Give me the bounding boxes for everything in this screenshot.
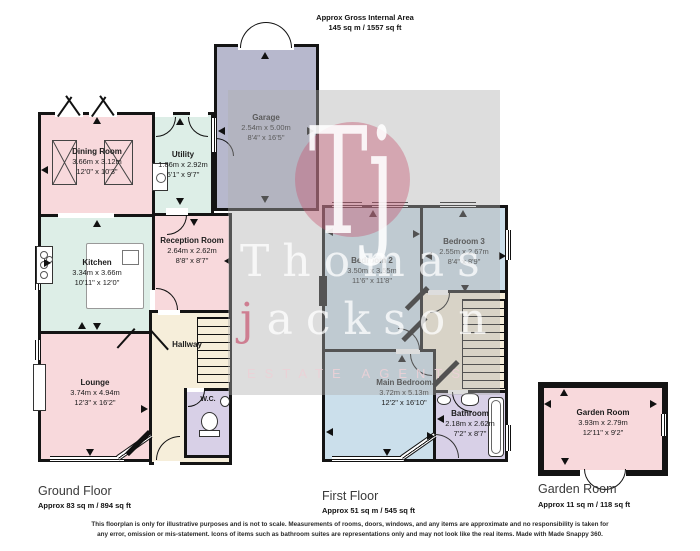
direction-arrow-icon [459,210,467,217]
window [661,414,667,436]
direction-arrow-icon [561,458,569,465]
garden-room-area: Approx 11 sq m / 118 sq ft [538,500,630,509]
gross-internal-area: Approx Gross Internal Area 145 sq m / 15… [215,13,515,33]
direction-arrow-icon [176,198,184,205]
direction-arrow-icon [86,449,94,456]
direction-arrow-icon [383,449,391,456]
gross-area-title: Approx Gross Internal Area [215,13,515,23]
toilet-cistern [199,430,220,437]
label-reception: Reception Room 2.64m x 2.62m 8'8" x 8'7" [142,236,242,266]
wall-gap [154,461,180,466]
direction-arrow-icon [369,210,377,217]
direction-arrow-icon [176,118,184,125]
brand-initial: j [240,294,267,345]
direction-arrow-icon [93,117,101,124]
label-main-bedroom: Main Bedroom 3.72m x 5.13m 12'2" x 16'10… [354,378,454,408]
floorplan-sheet: Approx Gross Internal Area 145 sq m / 15… [0,0,700,551]
wall-gap [166,208,188,215]
direction-arrow-icon [190,219,198,226]
garden-room-label: Garden Room [538,482,617,496]
window [372,202,408,208]
label-bedroom3: Bedroom 3 2.55m x 2.67m 8'4" x 8'9" [414,237,514,267]
label-bathroom: Bathroom 2.18m x 2.62m 7'2" x 8'7" [430,409,510,439]
toilet-icon [201,412,218,431]
wall-gap [150,290,155,310]
ground-floor-label: Ground Floor [38,484,112,498]
direction-arrow-icon [398,355,406,362]
direction-arrow-icon [261,196,269,203]
window [332,202,362,208]
label-hallway: Hallway [147,340,227,350]
toilet-icon [461,393,479,406]
first-floor-label: First Floor [322,489,378,503]
label-wc: W.C. [188,395,228,404]
disclaimer-text: This floorplan is only for illustrative … [88,520,612,540]
direction-arrow-icon [326,428,333,436]
direction-arrow-icon [650,400,657,408]
direction-arrow-icon [93,323,101,330]
direction-arrow-icon [78,322,86,329]
gross-area-value: 145 sq m / 1557 sq ft [215,23,515,33]
direction-arrow-icon [261,52,269,59]
window [440,202,476,208]
label-utility: Utility 1.86m x 2.92m 6'1" x 9'7" [143,150,223,180]
window [50,456,124,462]
window [35,340,41,360]
label-dining: Dining Room 3.66m x 3.12m 12'0" x 10'3" [47,147,147,177]
wall-gap [158,310,180,315]
direction-arrow-icon [93,220,101,227]
direction-arrow-icon [461,285,469,292]
window [332,456,404,462]
wall-gap [58,213,114,218]
ground-floor-area: Approx 83 sq m / 894 sq ft [38,501,131,510]
label-lounge: Lounge 3.74m x 4.94m 12'3" x 16'2" [45,378,145,408]
direction-arrow-icon [544,400,551,408]
first-floor-area: Approx 51 sq m / 545 sq ft [322,506,415,515]
label-kitchen: Kitchen 3.34m x 3.66m 10'11" x 12'0" [47,258,147,288]
label-bedroom2: Bedroom 2 3.50m x 3.55m 11'6" x 11'8" [322,256,422,286]
label-garden-room: Garden Room 3.93m x 2.79m 12'11" x 9'2" [553,408,653,438]
direction-arrow-icon [560,389,568,396]
stairs-first [462,299,505,389]
label-garage: Garage 2.54m x 5.00m 8'4" x 16'5" [216,113,316,143]
direction-arrow-icon [326,228,333,236]
